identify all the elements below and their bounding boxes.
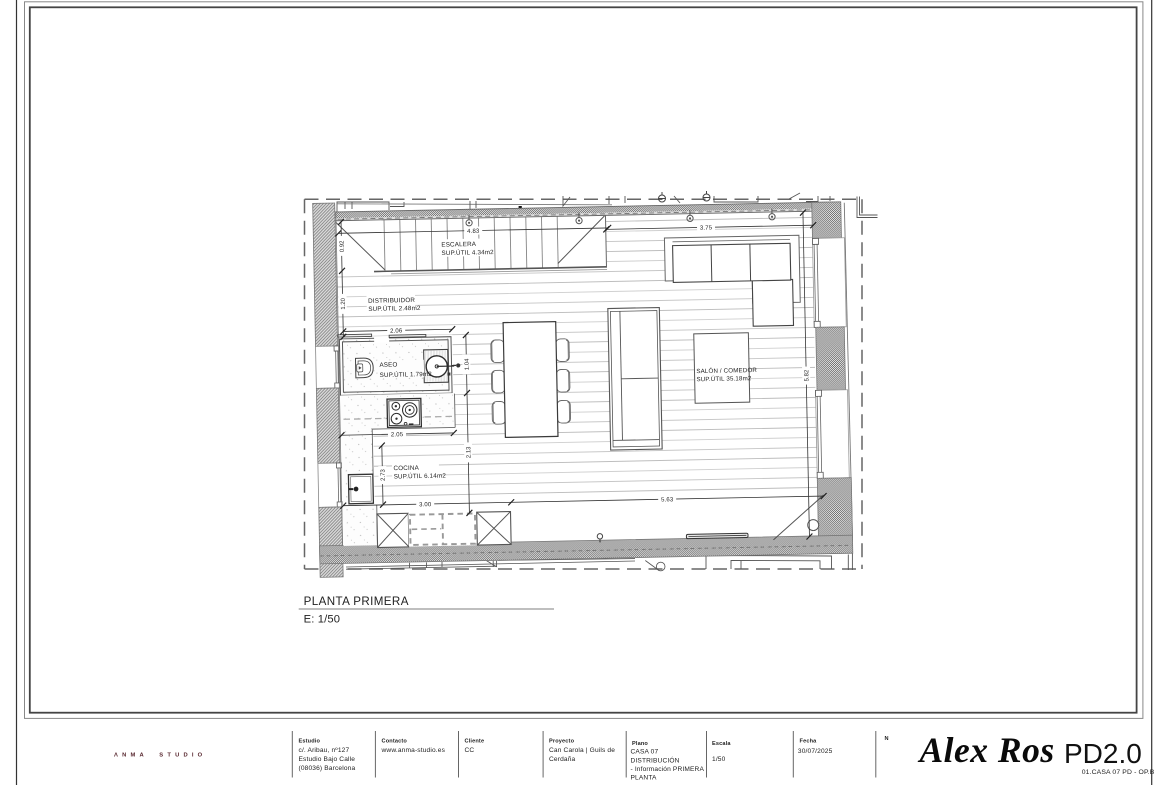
svg-text:PD2.0: PD2.0 [1064,738,1142,769]
svg-text:CC: CC [465,747,475,754]
svg-text:2.13: 2.13 [466,446,472,458]
svg-text:DISTRIBUIDOR: DISTRIBUIDOR [368,297,415,305]
svg-text:N: N [885,736,889,742]
svg-text:E: 1/50: E: 1/50 [304,614,341,626]
svg-text:SUP.ÚTIL 35.18m2: SUP.ÚTIL 35.18m2 [696,375,752,383]
svg-text:DISTRIBUCIÓN: DISTRIBUCIÓN [631,756,680,765]
svg-text:ΛNMA STUDIO: ΛNMA STUDIO [114,753,206,759]
svg-text:5.63: 5.63 [661,497,674,503]
svg-text:4.83: 4.83 [467,229,480,235]
svg-text:- Información PRIMERA: - Información PRIMERA [631,766,705,773]
svg-text:PLANTA: PLANTA [631,775,658,782]
svg-text:1.04: 1.04 [464,358,470,370]
svg-text:1/50: 1/50 [712,756,726,763]
svg-text:(08036) Barcelona: (08036) Barcelona [299,765,356,772]
svg-text:COCINA: COCINA [393,465,419,473]
svg-text:Proyecto: Proyecto [549,739,575,745]
svg-text:30/07/2025: 30/07/2025 [798,748,833,755]
svg-text:0.92: 0.92 [340,240,346,252]
svg-text:CASA 07: CASA 07 [631,749,659,756]
svg-text:PLANTA PRIMERA: PLANTA PRIMERA [304,595,409,608]
svg-text:SALÓN / COMEDOR: SALÓN / COMEDOR [696,367,757,375]
svg-text:3.75: 3.75 [700,225,713,231]
svg-text:Contacto: Contacto [382,739,408,745]
svg-text:3.00: 3.00 [419,502,432,508]
svg-text:1.20: 1.20 [341,297,347,309]
svg-text:Alex Ros: Alex Ros [918,730,1055,770]
svg-text:c/. Aribau, nº127: c/. Aribau, nº127 [299,747,350,754]
svg-text:www.anma-studio.es: www.anma-studio.es [381,747,446,754]
svg-text:01.CASA 07 PD - OP.B: 01.CASA 07 PD - OP.B [1082,769,1155,776]
svg-text:Fecha: Fecha [800,739,818,745]
svg-text:ESCALERA: ESCALERA [441,241,477,249]
svg-text:2.73: 2.73 [380,469,386,481]
svg-text:2.06: 2.06 [390,328,403,334]
svg-text:Cliente: Cliente [465,739,485,745]
svg-text:Plano: Plano [632,741,648,747]
svg-text:Estudio: Estudio [299,739,321,745]
svg-text:Escala: Escala [712,741,731,747]
svg-text:Estudio Bajo Calle: Estudio Bajo Calle [299,756,356,763]
svg-text:5.82: 5.82 [804,369,810,381]
svg-text:Can Carola | Guils de: Can Carola | Guils de [549,747,615,754]
svg-text:ASEO: ASEO [379,361,397,368]
svg-text:Cerdaña: Cerdaña [549,756,576,763]
svg-text:2.05: 2.05 [391,432,404,438]
